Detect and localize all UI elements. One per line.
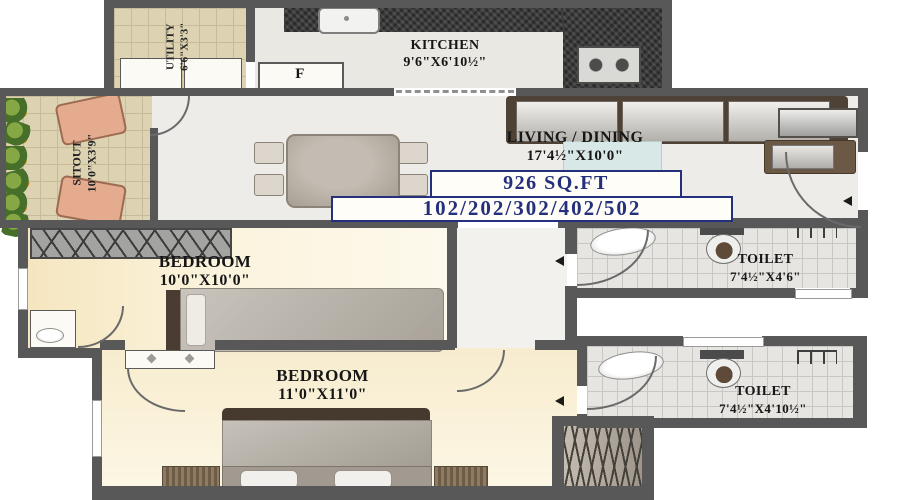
room-name: UTILITY <box>164 23 178 71</box>
shaft-hatch <box>564 426 642 490</box>
wall <box>516 88 866 96</box>
dining-chair <box>398 142 428 164</box>
area-box: 926 SQ.FT <box>430 170 682 198</box>
room-dims: 7'4½"X4'6" <box>648 269 883 284</box>
bed2-headboard <box>222 408 430 420</box>
area-label: 926 SQ.FT <box>503 172 609 194</box>
bed1-headboard <box>166 290 180 352</box>
stove-icon <box>577 46 641 84</box>
room-name: TOILET <box>638 384 888 401</box>
room-dims: 10'0"X3'9" <box>84 134 99 193</box>
wall <box>92 486 652 500</box>
wall <box>662 0 672 96</box>
room-dims: 17'4½"X10'0" <box>445 148 705 166</box>
kitchen-label: KITCHEN 9'6"X6'10½" <box>330 38 560 71</box>
wall <box>850 288 868 298</box>
window <box>18 268 28 310</box>
kitchen-sink-icon <box>318 7 380 34</box>
wall <box>92 348 102 400</box>
room-name: TOILET <box>648 252 883 269</box>
sink-drain-icon <box>344 16 349 21</box>
wall <box>0 88 112 96</box>
floor-plan: F <box>0 0 900 500</box>
wall <box>447 222 457 348</box>
wall <box>0 92 6 228</box>
wall <box>577 336 683 346</box>
bedroom2-label: BEDROOM 11'0"X11'0" <box>205 366 440 405</box>
toilet1-label: TOILET 7'4½"X4'6" <box>648 252 883 284</box>
wall <box>104 0 114 96</box>
room-name: BEDROOM <box>205 366 440 386</box>
room-name: LIVING / DINING <box>445 129 705 148</box>
dining-chair <box>254 174 284 196</box>
units-label: 102/202/302/402/502 <box>423 196 642 220</box>
living-label: LIVING / DINING 17'4½"X10'0" <box>445 129 705 166</box>
window <box>92 400 102 457</box>
wall <box>150 128 158 228</box>
utility-label: UTILITY 6'6"X3'3" <box>136 6 220 88</box>
shower-icon <box>797 350 837 364</box>
sitout-label: SITOUT 10'0"X3'9" <box>42 120 126 206</box>
room-dims: 11'0"X11'0" <box>205 386 440 405</box>
bedroom1-label: BEDROOM 10'0"X10'0" <box>95 252 315 291</box>
room-dims: 6'6"X3'3" <box>178 23 192 71</box>
wall <box>18 222 28 268</box>
wash-basin-icon <box>36 328 64 343</box>
toilet2-label: TOILET 7'4½"X4'10½" <box>638 384 888 416</box>
wall <box>18 348 100 358</box>
wall <box>92 455 102 490</box>
tv-console <box>778 108 858 138</box>
kitchen-opening-dashed <box>396 90 514 93</box>
dining-chair <box>398 174 428 196</box>
wall <box>215 340 455 350</box>
window <box>683 337 764 347</box>
wall <box>565 288 795 298</box>
room-name: KITCHEN <box>330 38 560 55</box>
wall <box>858 88 868 152</box>
door-arrow-icon <box>838 196 852 206</box>
room-name: SITOUT <box>69 134 84 193</box>
corridor-floor <box>455 228 567 350</box>
door-arrow-icon <box>550 396 564 406</box>
wall <box>565 222 577 254</box>
bed1-pillow <box>186 294 206 346</box>
window <box>795 289 852 299</box>
room-dims: 7'4½"X4'10½" <box>638 401 888 416</box>
wall <box>577 344 587 386</box>
door-arrow-icon <box>550 256 564 266</box>
wall <box>577 418 865 428</box>
plant-icon <box>2 98 30 122</box>
bedroom2-dresser <box>125 350 215 369</box>
wall <box>152 88 394 96</box>
wall <box>246 0 255 62</box>
wall <box>762 336 865 346</box>
room-dims: 10'0"X10'0" <box>95 272 315 291</box>
units-box: 102/202/302/402/502 <box>331 196 733 222</box>
wall <box>535 340 577 350</box>
dining-chair <box>254 142 284 164</box>
room-name: BEDROOM <box>95 252 315 272</box>
bed2-mattress <box>222 420 432 470</box>
wall <box>100 340 125 350</box>
room-dims: 9'6"X6'10½" <box>330 55 560 72</box>
